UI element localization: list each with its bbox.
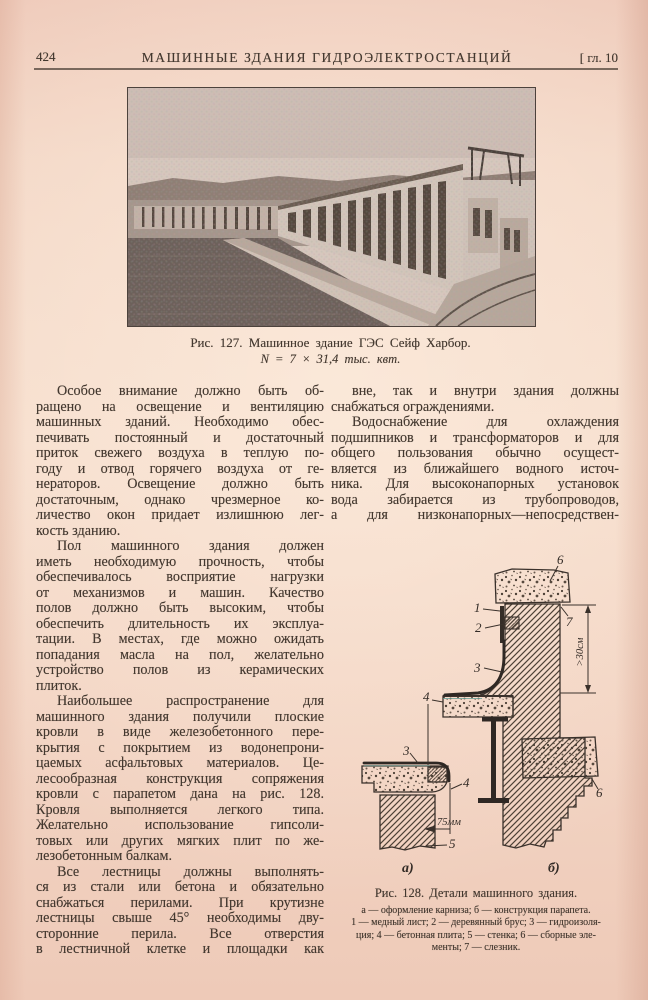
- text-line: снабжаться перилами. При крутизне: [36, 896, 324, 912]
- detail-a-structure: [362, 766, 448, 850]
- text-line: цаемых асфальтовых материалов. Це-: [36, 756, 324, 772]
- figure-label-4: 4: [423, 689, 430, 704]
- text-line: обеспечить длительность их эксплуа-: [36, 617, 324, 633]
- text-line: личество окон придает излишнюю лег-: [36, 508, 324, 524]
- photo-figure-127: [127, 87, 536, 327]
- text-line: ся из стали или бетона и обязательно: [36, 880, 324, 896]
- text-line: приток свежего воздуха в теплую по-: [36, 446, 324, 462]
- figure-label-1: 1: [474, 600, 481, 615]
- text-line: ника. Для высоконапорных установок: [331, 477, 619, 493]
- running-title: МАШИННЫЕ ЗДАНИЯ ГИДРОЭЛЕКТРОСТАНЦИЙ: [36, 50, 618, 66]
- text-line: машинного здания получили плоские: [36, 710, 324, 726]
- column-right: вне, так и внутри здания должныснабжатьс…: [331, 384, 619, 524]
- text-line: ращено на освещение и вентиляцию: [36, 400, 324, 416]
- text-line: а для низконапорных—непосредствен-: [331, 508, 619, 524]
- text-line: полов должно быть высоким, чтобы: [36, 601, 324, 617]
- figure-label-6: 6: [557, 552, 564, 567]
- text-line: печивать постоянный и достаточный: [36, 431, 324, 447]
- text-line: от механизмов и машин. Качество: [36, 586, 324, 602]
- figure-label-3: 3: [473, 660, 481, 675]
- chapter-marker: [ гл. 10: [580, 50, 618, 66]
- figure-label-7: 7: [566, 614, 573, 629]
- text-line: сторонние перила. Все отверстия: [36, 927, 324, 943]
- text-line: иметь необходимую прочность, чтобы: [36, 555, 324, 571]
- text-line: попадания масла на пол, желательно: [36, 648, 324, 664]
- text-line: лесообразная конструкция сопряжения: [36, 772, 324, 788]
- text-line: вне, так и внутри здания должны: [331, 384, 619, 400]
- figure-127-caption: Рис. 127. Машинное здание ГЭС Сейф Харбо…: [127, 334, 534, 368]
- text-line: тации. В местах, где можно ожидать: [36, 632, 324, 648]
- legend-line: а — оформление карниза; б — конструкция …: [330, 905, 622, 917]
- column-left: Особое внимание должно быть об-ращено на…: [36, 384, 324, 958]
- figure-dim-30cm: >30см: [575, 637, 586, 666]
- figure-label-5: 5: [449, 836, 456, 851]
- text-line: Кровля выполняется легкого типа.: [36, 803, 324, 819]
- detail-b-structure: [443, 569, 598, 848]
- book-page-scan: 424 МАШИННЫЕ ЗДАНИЯ ГИДРОЭЛЕКТРОСТАНЦИЙ …: [0, 0, 648, 1000]
- figure-128-drawing: >30см 75мм: [330, 548, 620, 878]
- text-line: подшипников и трансформаторов и для: [331, 431, 619, 447]
- text-line: кровли с парапетом дана на рис. 128.: [36, 787, 324, 803]
- text-line: снабжаться ограждениями.: [331, 400, 619, 416]
- figure-label-a: а): [402, 861, 414, 876]
- text-line: нераторов. Освещение должно быть: [36, 477, 324, 493]
- text-line: кровли в виде железобетонного пере-: [36, 725, 324, 741]
- figure-dim-75mm: 75мм: [437, 817, 461, 828]
- text-line: вода забирается из трубопроводов,: [331, 493, 619, 509]
- text-line: машинных зданий. Необходимо обес-: [36, 415, 324, 431]
- text-line: Водоснабжение для охлаждения: [331, 415, 619, 431]
- wooden-batten: [504, 617, 519, 629]
- text-line: году и отвод горячего воздуха от ге-: [36, 462, 324, 478]
- figure-label-b: б): [548, 861, 560, 876]
- figure-label-6b: 6: [596, 785, 603, 800]
- text-line: Желательно использование гипсоли-: [36, 818, 324, 834]
- text-line: Особое внимание должно быть об-: [36, 384, 324, 400]
- header-rule: [34, 68, 618, 70]
- text-line: плиток.: [36, 679, 324, 695]
- legend-line: ция; 4 — бетонная плита; 5 — стенка; 6 —…: [330, 930, 622, 942]
- figure-label-4b: 4: [463, 775, 470, 790]
- figure-127-caption-line1: Рис. 127. Машинное здание ГЭС Сейф Харбо…: [127, 334, 534, 351]
- text-line: устройство полов из керамических: [36, 663, 324, 679]
- text-line: кость зданию.: [36, 524, 324, 540]
- text-line: товых или других мягких плит по же-: [36, 834, 324, 850]
- text-line: Наибольшее распространение для: [36, 694, 324, 710]
- figure-127-caption-line2: N = 7 × 31,4 тыс. квт.: [127, 351, 534, 368]
- figure-128-legend: а — оформление карниза; б — конструкция …: [330, 905, 622, 954]
- text-line: обеспечивалось восприятие нагрузки: [36, 570, 324, 586]
- text-line: Пол машинного здания должен: [36, 539, 324, 555]
- figure-label-3b: 3: [402, 743, 410, 758]
- figure-128-caption: Рис. 128. Детали машинного здания. а — о…: [330, 886, 622, 954]
- text-line: достаточным, однако чрезмерное ко-: [36, 493, 324, 509]
- text-line: вляется из ближайшего водного источ-: [331, 462, 619, 478]
- text-line: в лестничной клетке и площадки как: [36, 942, 324, 958]
- legend-line: 1 — медный лист; 2 — деревянный брус; 3 …: [330, 917, 622, 929]
- photo-art: [128, 88, 535, 326]
- text-line: Все лестницы должны выполнять-: [36, 865, 324, 881]
- figure-128-caption-title: Рис. 128. Детали машинного здания.: [330, 886, 622, 901]
- legend-line: менты; 7 — слезник.: [330, 942, 622, 954]
- text-line: общего пользования обычно осущест-: [331, 446, 619, 462]
- text-line: лестницы свыше 45° необходимы дву-: [36, 911, 324, 927]
- text-line: крытия с покрытием из водонепрони-: [36, 741, 324, 757]
- text-line: лезобетонным балкам.: [36, 849, 324, 865]
- figure-label-2: 2: [475, 620, 482, 635]
